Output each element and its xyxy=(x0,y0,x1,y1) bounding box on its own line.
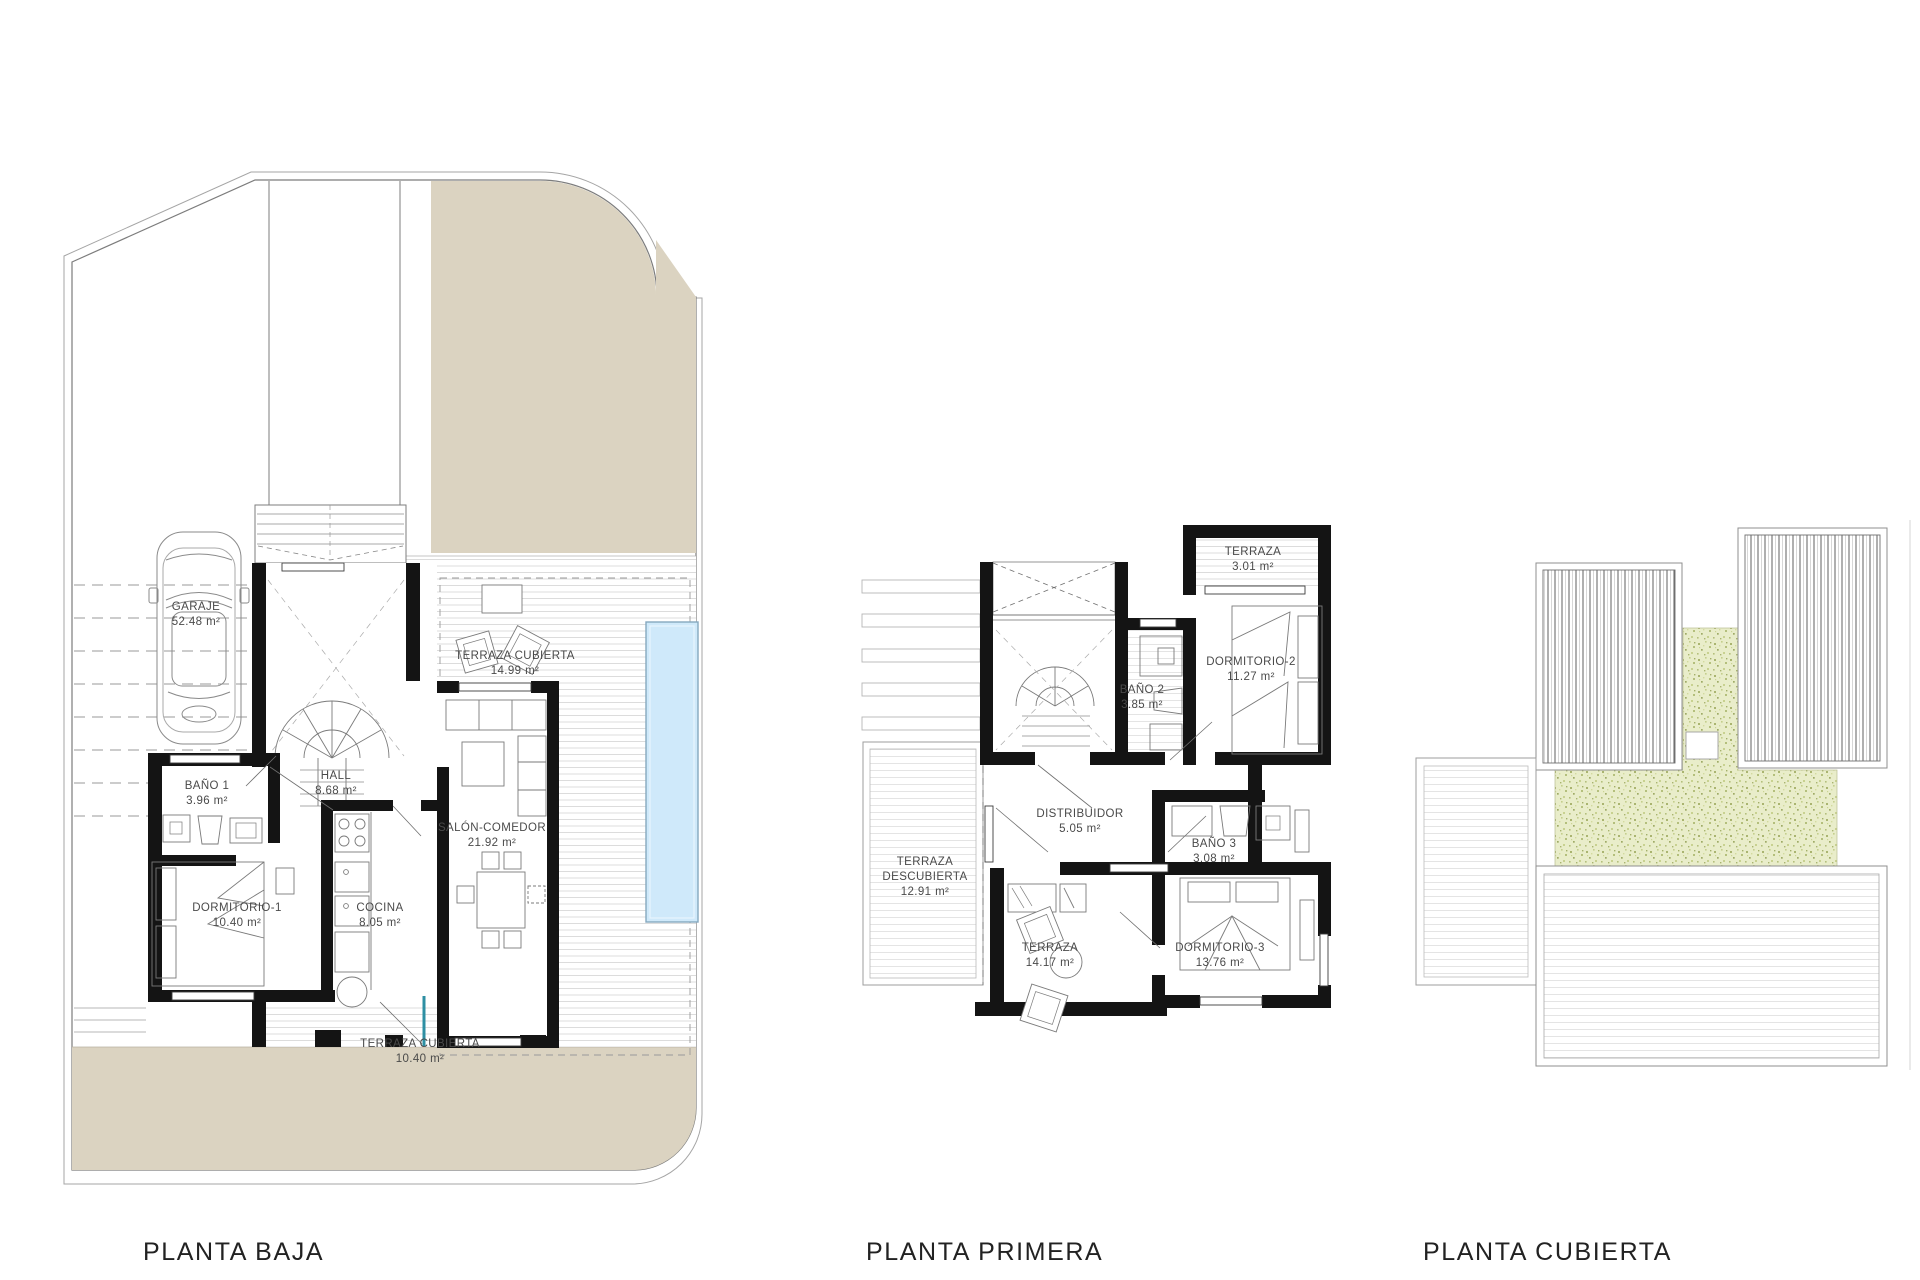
room-label-salon-comedor: SALÓN-COMEDOR 21.92 m² xyxy=(438,821,546,851)
room-label-terraza-301: TERRAZA 3.01 m² xyxy=(1225,545,1281,575)
deck-left xyxy=(1416,758,1536,985)
room-label-dormitorio3: DORMITORIO-3 13.76 m² xyxy=(1175,941,1265,971)
floorplan-drawing xyxy=(0,0,1920,1280)
room-label-bano2: BAÑO 2 3.85 m² xyxy=(1120,683,1165,713)
floorplan-sheet: GARAJE 52.48 m² TERRAZA CUBIERTA 14.99 m… xyxy=(0,0,1920,1280)
room-label-dormitorio2: DORMITORIO-2 11.27 m² xyxy=(1206,655,1296,685)
room-label-terraza-cubierta-sup: TERRAZA CUBIERTA 14.99 m² xyxy=(455,649,575,679)
roof-right xyxy=(1738,528,1887,768)
room-label-distribuidor: DISTRIBUIDOR 5.05 m² xyxy=(1036,807,1123,837)
plan-title-planta-primera: PLANTA PRIMERA xyxy=(866,1238,1103,1267)
room-label-terraza-1417: TERRAZA 14.17 m² xyxy=(1022,941,1078,971)
room-label-garaje: GARAJE 52.48 m² xyxy=(172,600,221,630)
room-label-cocina: COCINA 8.05 m² xyxy=(356,901,403,931)
room-label-terraza-cubierta-inf: TERRAZA CUBIERTA 10.40 m² xyxy=(360,1037,480,1067)
car-icon xyxy=(149,532,249,744)
plan-planta-baja xyxy=(64,172,702,1184)
room-label-hall: HALL 8.68 m² xyxy=(315,769,357,799)
entry-steps xyxy=(255,505,406,563)
staircase-upper xyxy=(996,630,1112,750)
pool xyxy=(646,622,698,922)
plan-planta-cubierta xyxy=(1416,520,1910,1070)
plan-title-planta-baja: PLANTA BAJA xyxy=(143,1238,324,1267)
room-label-bano3: BAÑO 3 3.08 m² xyxy=(1192,837,1237,867)
room-label-dormitorio1: DORMITORIO-1 10.40 m² xyxy=(192,901,282,931)
roof-left xyxy=(1536,563,1682,770)
room-label-terraza-descubierta: TERRAZA DESCUBIERTA 12.91 m² xyxy=(866,855,984,901)
room-label-bano1: BAÑO 1 3.96 m² xyxy=(185,779,230,809)
plan-title-planta-cubierta: PLANTA CUBIERTA xyxy=(1423,1238,1672,1267)
deck-bottom xyxy=(1536,866,1887,1066)
